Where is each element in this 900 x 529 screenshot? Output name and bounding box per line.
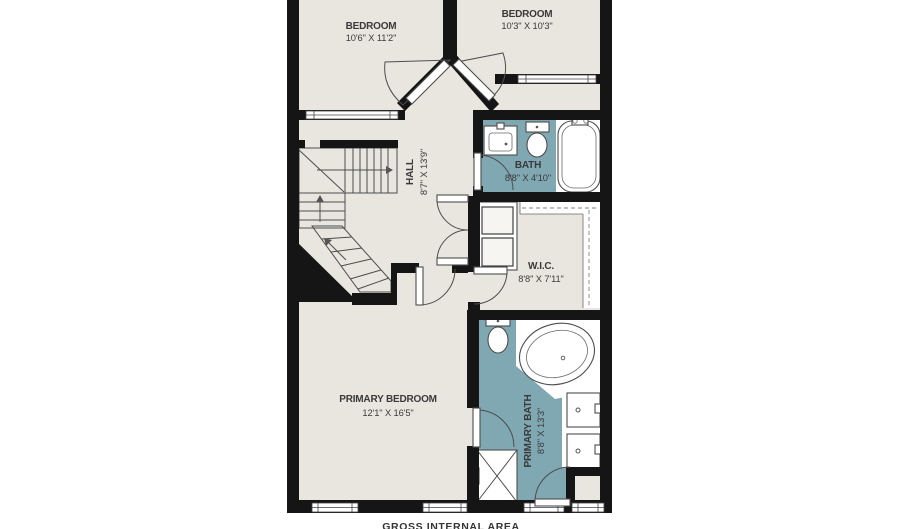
door-leaf <box>474 153 481 190</box>
window <box>306 111 398 119</box>
room-dims-primary-bedroom: 12'1" X 16'5" <box>362 408 413 418</box>
dryer-icon <box>482 238 513 266</box>
room-label-primary-bedroom: PRIMARY BEDROOM <box>339 394 437 405</box>
window <box>423 503 467 512</box>
wall-wic-bottom <box>467 310 612 320</box>
window <box>518 75 596 83</box>
bathtub-icon <box>558 121 600 192</box>
room-label-wic: W.I.C. <box>528 261 554 272</box>
washer-icon <box>482 207 513 234</box>
door-leaf <box>437 258 468 265</box>
wall-bath-bottom <box>473 192 612 202</box>
room-label-bath: BATH <box>515 160 541 171</box>
floor-plan-page: BEDROOM 10'6" X 11'2" BEDROOM 10'3" X 10… <box>0 0 900 529</box>
wall-bath-top <box>473 110 612 120</box>
window <box>312 503 358 512</box>
room-label-primary-bath: PRIMARY BATH <box>523 395 534 468</box>
room-label-bedroom-1: BEDROOM <box>346 21 397 32</box>
room-dims-primary-bath: 8'8" X 13'3" <box>536 408 546 454</box>
faucet-icon <box>497 123 504 129</box>
door-leaf <box>535 499 570 506</box>
room-dims-wic: 8'8" X 7'11" <box>518 274 563 284</box>
door-leaf <box>473 408 480 447</box>
wall-bedroom-divider <box>443 0 457 60</box>
room-dims-bedroom-1: 10'6" X 11'2" <box>346 33 397 43</box>
room-dims-bedroom-2: 10'3" X 10'3" <box>501 21 552 31</box>
footer-label: GROSS INTERNAL AREA <box>382 521 519 529</box>
laundry-cabinet <box>477 202 517 270</box>
room-dims-bath: 8'8" X 4'10" <box>505 173 551 183</box>
room-label-bedroom-2: BEDROOM <box>502 9 553 20</box>
door-leaf <box>437 195 468 202</box>
window <box>572 503 604 512</box>
door-leaf <box>474 267 507 274</box>
wic-shelf-right <box>583 202 600 308</box>
room-dims-hall: 8'7" X 13'9" <box>419 149 429 195</box>
room-label-hall: HALL <box>405 159 416 185</box>
door-leaf <box>416 267 423 305</box>
alcove <box>575 476 600 502</box>
floor-plan: BEDROOM 10'6" X 11'2" BEDROOM 10'3" X 10… <box>0 0 900 529</box>
